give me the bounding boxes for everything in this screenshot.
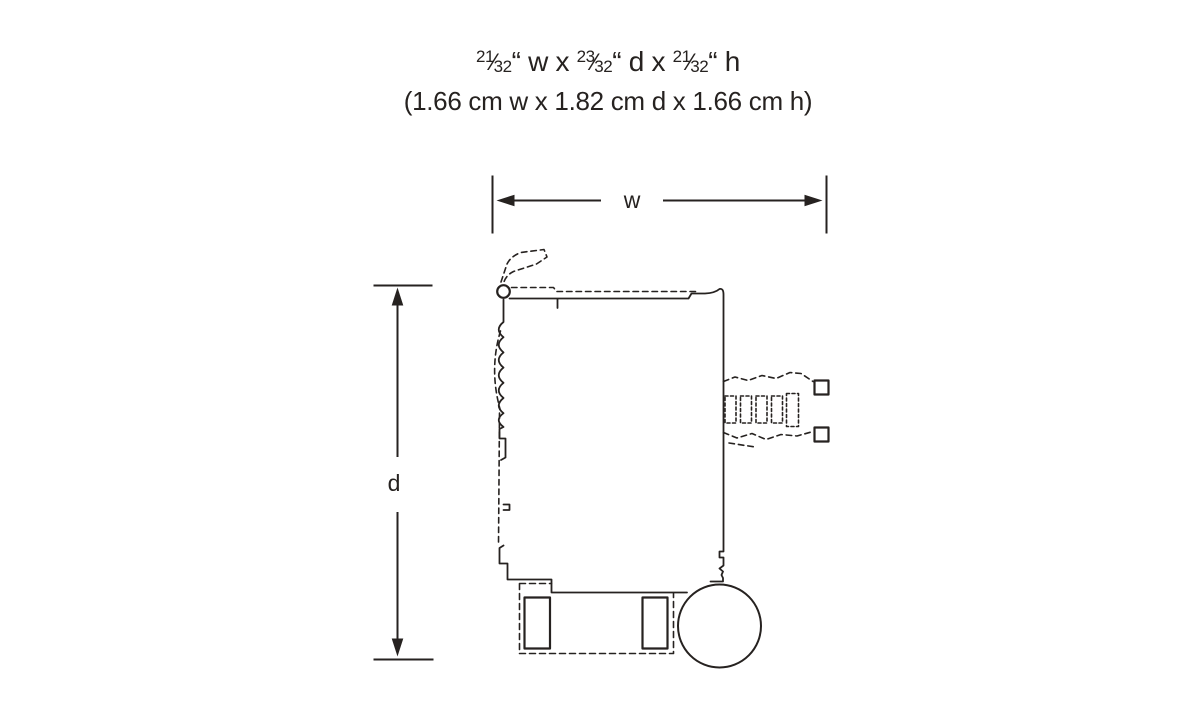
width-arrowhead-right: [805, 195, 823, 207]
plug-harness-extra-dash: [729, 443, 755, 447]
device-side-view: [497, 285, 828, 667]
lid-top-dashed-line: [512, 288, 700, 292]
plug-segment-4: [772, 396, 783, 423]
open-flap-outline: [501, 250, 547, 284]
product-dimension-diagram: w d: [0, 0, 1200, 709]
plug-harness-bottom-wire: [724, 432, 814, 440]
base-platform-dashed-outline: [520, 584, 674, 654]
plug-segments: [725, 394, 799, 427]
body-bottom-edge: [500, 546, 688, 593]
width-dimension-label: w: [623, 187, 641, 213]
width-arrowhead-left: [497, 195, 515, 207]
dimension-annotations: [374, 176, 827, 660]
depth-arrowhead-bottom: [392, 639, 404, 657]
left-edge-latch-tick: [504, 505, 510, 511]
base-pad-right: [643, 598, 668, 649]
hinge-pin: [497, 285, 510, 298]
plug-end-bracket: [787, 394, 799, 427]
plug-segment-2: [741, 396, 752, 423]
plug-harness-top-wire: [724, 373, 814, 382]
base-pad-left: [525, 598, 551, 649]
body-left-ribbed-edge: [499, 300, 506, 461]
body-top-right-edge: [510, 289, 724, 582]
plug-segment-1: [725, 396, 736, 423]
wheel-outline: [678, 585, 761, 668]
depth-dimension-label: d: [388, 470, 401, 496]
plug-tip-bottom: [815, 428, 829, 442]
plug-segment-3: [756, 396, 767, 423]
plug-tip-top: [815, 381, 829, 395]
depth-arrowhead-top: [392, 288, 404, 306]
